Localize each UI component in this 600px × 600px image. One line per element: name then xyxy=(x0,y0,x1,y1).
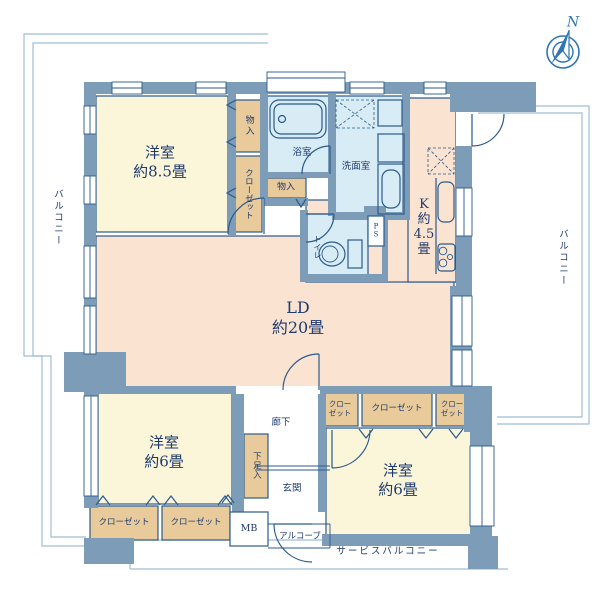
label-closet-br-3: クローゼット xyxy=(441,400,464,419)
label-service-balcony: サービスバルコニー xyxy=(336,546,439,558)
label-entrance: 玄関 xyxy=(282,483,301,495)
label-ld: LD約20畳 xyxy=(272,298,324,338)
label-closet-br-2: クローゼット xyxy=(371,404,422,415)
label-pipe-shaft: PS xyxy=(374,223,379,238)
label-compass-north: N xyxy=(567,14,579,32)
label-meter-box: MB xyxy=(241,523,258,535)
corridor-opening xyxy=(236,386,320,394)
label-closet-bl-1: クローゼット xyxy=(98,518,149,529)
room-bath xyxy=(266,96,330,176)
label-closet-bl-2: クローゼット xyxy=(170,518,221,529)
balcony-door-opening xyxy=(456,112,472,146)
label-balcony-left: バルコニー xyxy=(51,189,63,247)
label-bath: 浴室 xyxy=(292,147,311,159)
label-bedroom-6-right: 洋室約6畳 xyxy=(378,461,418,499)
label-balcony-right: バルコニー xyxy=(556,229,568,287)
room-washroom xyxy=(334,96,404,214)
label-closet-top-left: クローゼット xyxy=(243,169,254,220)
label-bedroom-85: 洋室約8.5畳 xyxy=(133,143,187,181)
label-storage-top: 物入 xyxy=(242,115,253,137)
label-corridor: 廊下 xyxy=(271,417,290,429)
label-shoe-storage: 下足入 xyxy=(251,452,262,481)
compass-icon xyxy=(547,30,579,68)
label-alcove: アルコーブ xyxy=(279,532,321,543)
label-bedroom-6-left: 洋室約6畳 xyxy=(144,433,184,471)
floorplan: 洋室約8.5畳 物入 クローゼット 浴室 物入 洗面室 K約 4.5畳 トイレ … xyxy=(0,0,600,600)
label-toilet: トイレ xyxy=(312,235,322,259)
label-washroom: 洗面室 xyxy=(342,161,371,173)
label-storage-mid: 物入 xyxy=(277,182,295,193)
bay-niche-top xyxy=(267,72,345,92)
label-closet-br-1: クローゼット xyxy=(329,400,352,419)
label-kitchen: K約 4.5畳 xyxy=(414,198,435,258)
